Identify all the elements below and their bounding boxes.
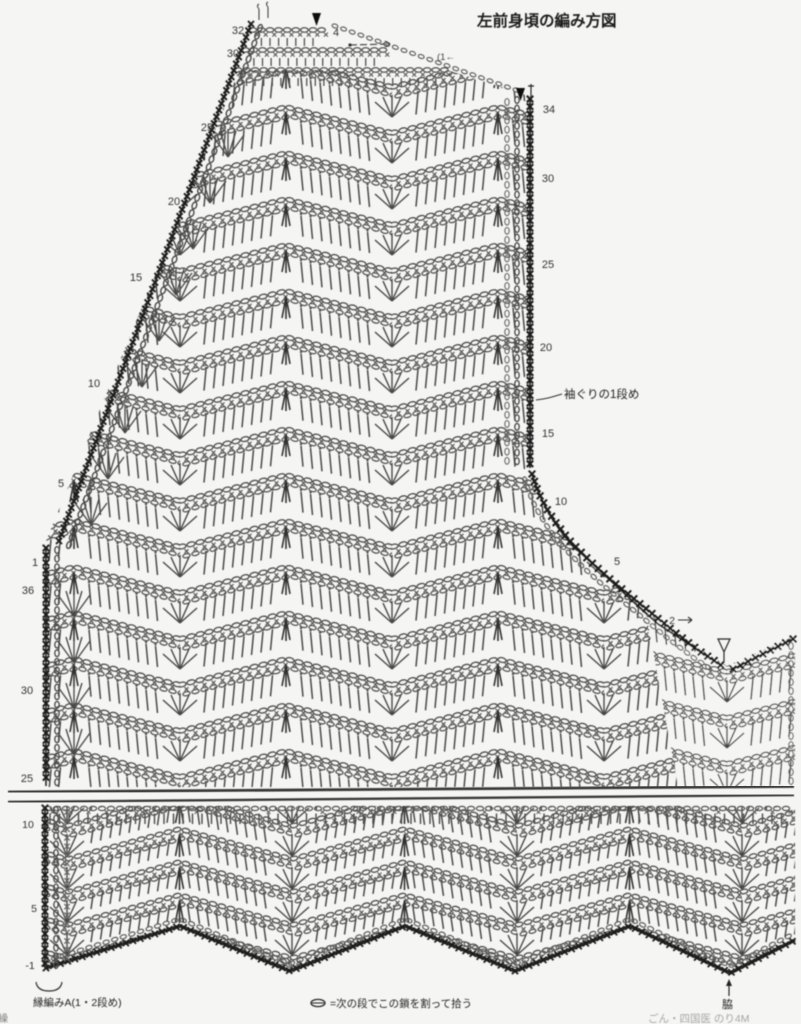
- svg-text:36: 36: [22, 585, 34, 597]
- svg-text:30: 30: [21, 685, 33, 697]
- svg-text:=次の段でこの鎖を割って拾う: =次の段でこの鎖を割って拾う: [330, 997, 472, 1010]
- svg-text:2: 2: [669, 615, 675, 627]
- svg-text:-1: -1: [25, 960, 34, 972]
- svg-text:(1←: (1←: [437, 52, 455, 63]
- svg-text:25: 25: [201, 122, 213, 134]
- svg-text:縁編みA(1・2段め): 縁編みA(1・2段め): [33, 996, 122, 1009]
- svg-text:30: 30: [542, 173, 554, 185]
- svg-text:袖ぐりの1段め: 袖ぐりの1段め: [564, 387, 639, 401]
- svg-text:32: 32: [232, 25, 244, 37]
- svg-text:15: 15: [130, 272, 142, 284]
- svg-text:繰: 繰: [0, 1012, 8, 1024]
- svg-text:5: 5: [614, 556, 620, 568]
- svg-text:脇: 脇: [722, 998, 733, 1011]
- svg-text:34: 34: [543, 104, 555, 116]
- svg-text:10: 10: [88, 378, 100, 390]
- svg-text:25: 25: [21, 773, 33, 785]
- svg-text:左前身頃の編み方図: 左前身頃の編み方図: [476, 11, 617, 30]
- svg-text:30: 30: [227, 48, 239, 60]
- svg-text:5: 5: [31, 903, 37, 915]
- svg-text:10: 10: [555, 496, 567, 508]
- svg-text:15: 15: [542, 428, 554, 440]
- svg-text:5: 5: [58, 478, 64, 490]
- svg-text:10: 10: [22, 819, 34, 831]
- svg-text:20: 20: [540, 342, 552, 354]
- svg-text:1: 1: [32, 557, 38, 569]
- svg-text:25: 25: [542, 259, 554, 271]
- svg-text:20: 20: [168, 196, 180, 208]
- svg-text:4: 4: [333, 27, 339, 39]
- svg-text:ごん・四国医 のり4M: ごん・四国医 のり4M: [648, 1012, 750, 1024]
